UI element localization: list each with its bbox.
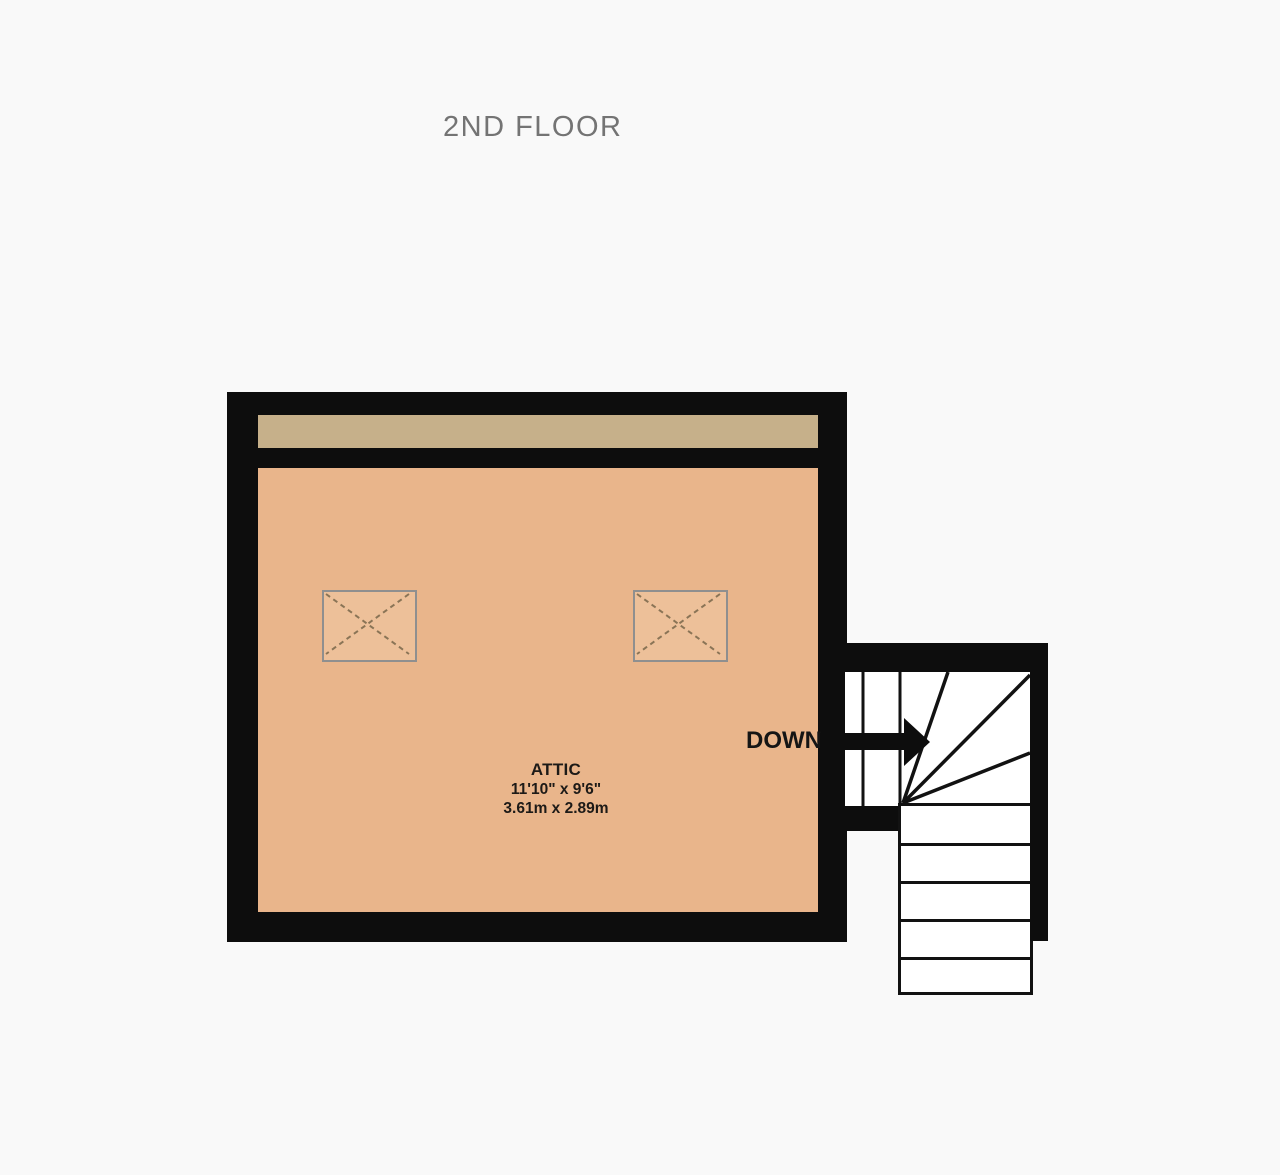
stair-tread-line [901,843,1030,846]
stair-tread-line [901,881,1030,884]
stairs-top-wall [845,643,1048,673]
skylight-x-icon [324,592,411,656]
attic-room-floor [258,468,818,912]
floorplan-canvas: 2ND FLOOR ATTIC 11'10" x 9'6" 3.61m x 2.… [0,0,1280,1175]
down-arrow-icon [820,718,930,766]
down-arrow-shaft [820,733,904,750]
ceiling-break-strip [258,415,818,448]
stairs-right-wall [1030,643,1048,941]
down-arrow-head [904,718,930,766]
skylight-right [633,590,728,662]
room-name: ATTIC [416,760,696,780]
room-dimensions-metric: 3.61m x 2.89m [416,799,696,818]
stairs-lower-wall-stub [845,806,900,831]
stair-tread-line [901,919,1030,922]
stair-tread-line [901,957,1030,960]
attic-room-walls [227,392,847,942]
skylight-x-icon [635,592,722,656]
skylight-left [322,590,417,662]
stairs-straight-flight [898,803,1033,995]
down-label: DOWN [662,727,822,755]
room-dimensions-imperial: 11'10" x 9'6" [416,780,696,799]
floor-title: 2ND FLOOR [443,111,622,144]
room-label: ATTIC 11'10" x 9'6" 3.61m x 2.89m [416,760,696,818]
